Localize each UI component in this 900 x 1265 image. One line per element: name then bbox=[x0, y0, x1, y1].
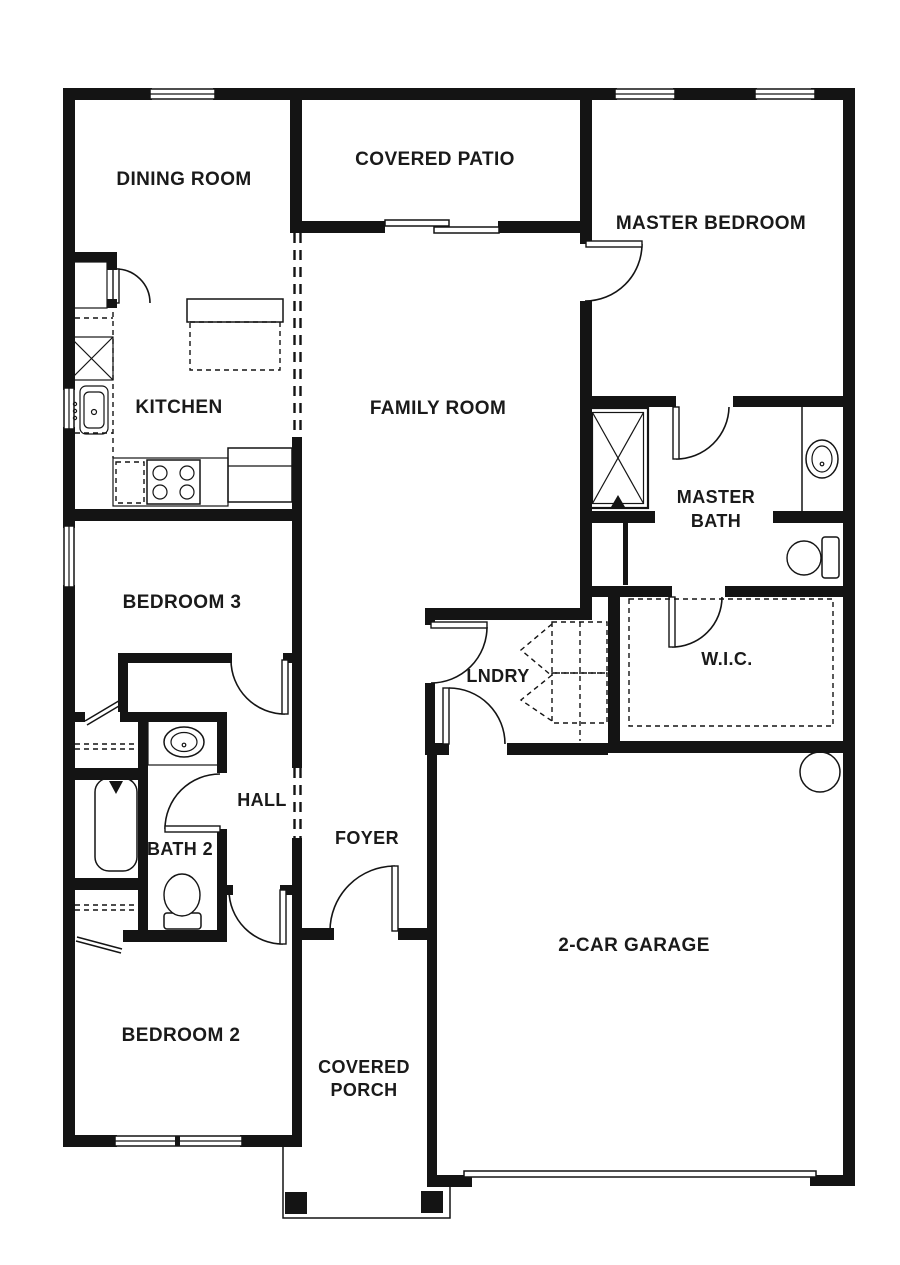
washer bbox=[552, 622, 607, 673]
wall bbox=[580, 396, 676, 407]
wall bbox=[580, 301, 592, 397]
wall bbox=[63, 252, 117, 262]
door-swing-arc bbox=[676, 407, 729, 459]
faucet-dot bbox=[73, 409, 76, 412]
wall bbox=[292, 838, 302, 1147]
closet-box bbox=[70, 262, 107, 308]
door-swing-arc bbox=[229, 890, 283, 944]
wall bbox=[623, 523, 628, 585]
patio-sliding-door bbox=[385, 220, 449, 226]
kitchen-cabinet-line bbox=[75, 318, 113, 433]
closet-door bbox=[85, 699, 122, 721]
wall bbox=[498, 221, 592, 233]
stove-burner bbox=[180, 466, 194, 480]
wall bbox=[425, 743, 449, 755]
room-label-patio: COVERED PATIO bbox=[355, 149, 515, 170]
kitchen-island-overhang bbox=[190, 322, 280, 370]
wall bbox=[580, 511, 655, 523]
wall bbox=[118, 653, 232, 663]
wall bbox=[608, 597, 620, 753]
closet-door bbox=[87, 703, 124, 725]
wall bbox=[217, 829, 227, 942]
door-swing-arc bbox=[116, 269, 150, 303]
master-toilet-bowl bbox=[787, 541, 821, 575]
wall bbox=[733, 396, 855, 407]
front-door-leaf bbox=[392, 866, 398, 931]
door-leaf bbox=[443, 688, 449, 744]
tub-shower-head bbox=[109, 781, 123, 794]
kitchen-sink-drain bbox=[92, 410, 97, 415]
room-label-master-bedroom: MASTER BEDROOM bbox=[616, 213, 806, 234]
wall bbox=[123, 930, 227, 942]
garage-door bbox=[464, 1171, 816, 1177]
room-label-garage: 2-CAR GARAGE bbox=[558, 935, 710, 956]
wall bbox=[673, 88, 757, 100]
door-leaf bbox=[431, 622, 487, 628]
room-label-laundry: LNDRY bbox=[466, 666, 529, 686]
door-leaf bbox=[280, 890, 286, 944]
kitchen-counter bbox=[113, 458, 228, 506]
wall bbox=[63, 878, 148, 890]
wall bbox=[63, 1135, 117, 1147]
wall bbox=[290, 92, 302, 233]
wall bbox=[843, 88, 855, 1186]
bath2-toilet-bowl bbox=[164, 874, 200, 916]
room-label-master-bath-2: BATH bbox=[691, 511, 741, 531]
wall bbox=[425, 608, 592, 620]
door-swing-arc bbox=[672, 597, 722, 647]
room-label-master-bath-1: MASTER bbox=[677, 487, 755, 507]
patio-sliding-door bbox=[434, 227, 499, 233]
master-sink-drain bbox=[820, 462, 824, 466]
bath2-sink bbox=[164, 727, 204, 757]
room-label-hall: HALL bbox=[237, 790, 287, 810]
room-label-bedroom3: BEDROOM 3 bbox=[123, 592, 242, 613]
door-leaf bbox=[113, 269, 119, 303]
wall bbox=[725, 586, 855, 597]
door-leaf bbox=[282, 660, 288, 714]
stove-burner bbox=[153, 466, 167, 480]
wall bbox=[302, 928, 334, 940]
room-label-wic: W.I.C. bbox=[701, 649, 752, 669]
bath2-sink-drain bbox=[182, 743, 186, 747]
wall bbox=[63, 712, 85, 722]
shower-head bbox=[611, 495, 625, 507]
door-leaf bbox=[673, 407, 679, 459]
front-door-swing-arc bbox=[330, 866, 395, 931]
door-swing-arc bbox=[231, 660, 285, 714]
wall bbox=[138, 722, 148, 930]
water-heater bbox=[800, 752, 840, 792]
faucet-dot bbox=[73, 416, 76, 419]
master-sink-basin bbox=[812, 446, 832, 472]
door-leaf bbox=[586, 241, 642, 247]
door-leaf bbox=[165, 826, 220, 832]
door-leaf bbox=[669, 597, 675, 647]
room-label-bedroom2: BEDROOM 2 bbox=[122, 1025, 241, 1046]
room-label-kitchen: KITCHEN bbox=[135, 397, 222, 418]
door-swing-arc bbox=[165, 774, 220, 829]
wall bbox=[773, 511, 848, 523]
room-label-porch-1: COVERED bbox=[318, 1057, 410, 1077]
kitchen-island bbox=[187, 299, 283, 322]
bath2-sink-basin bbox=[171, 733, 197, 752]
wall bbox=[398, 928, 427, 940]
stove-burner bbox=[180, 485, 194, 499]
window-mullion bbox=[175, 1136, 180, 1146]
wall bbox=[427, 755, 437, 1187]
wall bbox=[507, 743, 608, 755]
wall bbox=[592, 586, 672, 597]
wall bbox=[213, 88, 617, 100]
wall bbox=[292, 437, 302, 768]
room-label-dining: DINING ROOM bbox=[116, 169, 251, 190]
wall bbox=[608, 741, 855, 753]
wall bbox=[118, 663, 128, 712]
wall bbox=[63, 930, 75, 942]
floor-plan-drawing: DINING ROOM COVERED PATIO MASTER BEDROOM… bbox=[0, 0, 900, 1265]
door-jamb bbox=[107, 299, 117, 308]
wall bbox=[63, 585, 75, 1147]
door-swing-arc bbox=[449, 688, 505, 744]
wall bbox=[227, 885, 233, 895]
wall bbox=[63, 509, 302, 521]
closet-shelf bbox=[66, 744, 142, 749]
room-label-family: FAMILY ROOM bbox=[370, 398, 506, 419]
door-jamb bbox=[107, 261, 117, 270]
door-swing-arc bbox=[585, 244, 642, 301]
porch-post bbox=[285, 1192, 307, 1214]
master-toilet-tank bbox=[822, 537, 839, 578]
porch-post bbox=[421, 1191, 443, 1213]
floor-plan-page: DINING ROOM COVERED PATIO MASTER BEDROOM… bbox=[0, 0, 900, 1265]
wall bbox=[63, 88, 75, 390]
room-label-bath2: BATH 2 bbox=[147, 839, 213, 859]
stove-burner bbox=[153, 485, 167, 499]
room-label-foyer: FOYER bbox=[335, 828, 399, 848]
interior-walls bbox=[63, 92, 855, 1187]
wall bbox=[580, 100, 592, 244]
room-label-porch-2: PORCH bbox=[330, 1080, 397, 1100]
refrigerator bbox=[228, 448, 292, 502]
exterior-walls bbox=[63, 88, 855, 1187]
closet-shelf bbox=[66, 905, 142, 910]
wall bbox=[63, 88, 152, 100]
kitchen-cabinet bbox=[116, 462, 144, 503]
wall bbox=[290, 221, 385, 233]
faucet-dot bbox=[73, 402, 76, 405]
